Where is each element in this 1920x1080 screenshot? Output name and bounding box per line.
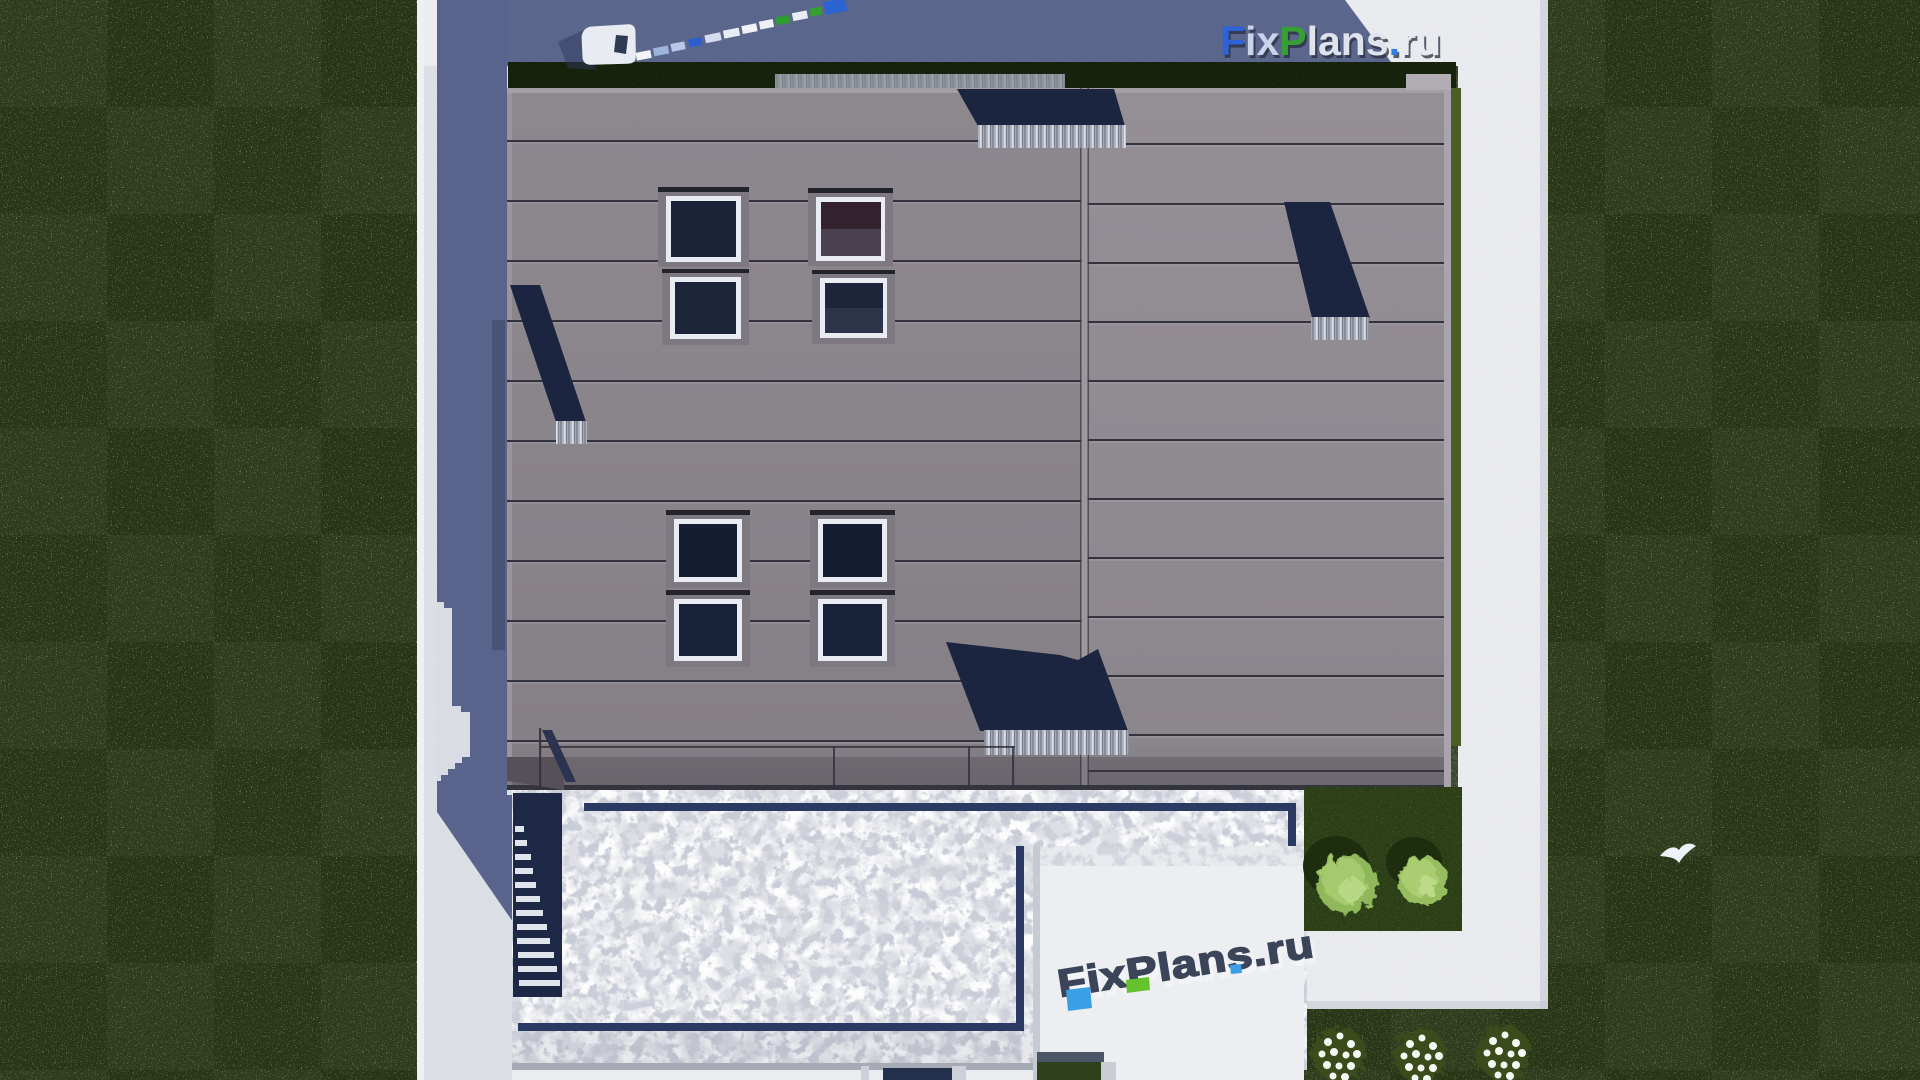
svg-text:FixPlans.ru: FixPlans.ru <box>1220 18 1441 64</box>
